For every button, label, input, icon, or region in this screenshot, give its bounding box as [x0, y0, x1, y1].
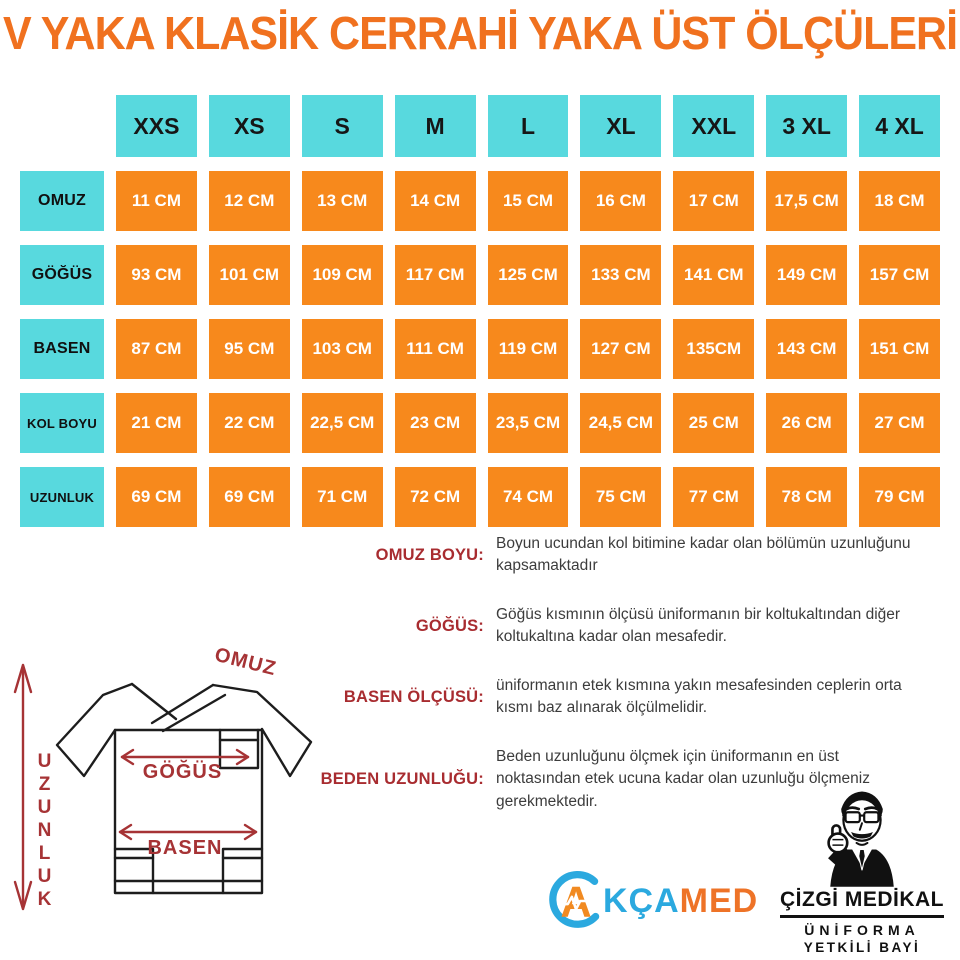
cizgi-medikal-logo: ÇİZGİ MEDİKAL ÜNİFORMA YETKİLİ BAYİ [766, 786, 958, 955]
size-cell-basen-3xl: 143 CM [766, 319, 847, 379]
size-cell-uzunluk-xl: 75 CM [580, 467, 661, 527]
size-cell-omuz-xxs: 11 CM [116, 171, 197, 231]
size-cell-kolboyu-4xl: 27 CM [859, 393, 940, 453]
scrub-top-measurement-diagram: OMUZ GÖĞÜS BASEN UZUNLUK [0, 645, 340, 960]
size-cell-gogus-xxl: 141 CM [673, 245, 754, 305]
size-cell-omuz-4xl: 18 CM [859, 171, 940, 231]
column-header-l: L [488, 95, 569, 157]
column-header-xxs: XXS [116, 95, 197, 157]
definition-text: Boyun ucundan kol bitimine kadar olan bö… [496, 533, 926, 578]
row-label-gogus: GÖĞÜS [20, 245, 104, 305]
akcamed-wordmark: KÇAMED [603, 882, 758, 921]
size-cell-uzunluk-xxs: 69 CM [116, 467, 197, 527]
size-cell-kolboyu-xxs: 21 CM [116, 393, 197, 453]
size-cell-gogus-4xl: 157 CM [859, 245, 940, 305]
size-cell-uzunluk-xxl: 77 CM [673, 467, 754, 527]
cizgi-medikal-yetkili-bayi: YETKİLİ BAYİ [766, 940, 958, 955]
akcamed-letter-a: A [560, 879, 591, 927]
akcamed-emblem-icon: A [545, 870, 607, 932]
size-cell-basen-s: 103 CM [302, 319, 383, 379]
size-cell-basen-l: 119 CM [488, 319, 569, 379]
size-cell-uzunluk-s: 71 CM [302, 467, 383, 527]
size-cell-basen-4xl: 151 CM [859, 319, 940, 379]
size-cell-omuz-xxl: 17 CM [673, 171, 754, 231]
column-header-xs: XS [209, 95, 290, 157]
size-cell-uzunluk-m: 72 CM [395, 467, 476, 527]
column-header-4xl: 4 XL [859, 95, 940, 157]
size-cell-uzunluk-xs: 69 CM [209, 467, 290, 527]
size-cell-omuz-l: 15 CM [488, 171, 569, 231]
size-cell-gogus-l: 125 CM [488, 245, 569, 305]
column-header-s: S [302, 95, 383, 157]
size-cell-gogus-xs: 101 CM [209, 245, 290, 305]
size-cell-kolboyu-xs: 22 CM [209, 393, 290, 453]
cizgi-medikal-name: ÇİZGİ MEDİKAL [780, 888, 944, 918]
row-label-basen: BASEN [20, 319, 104, 379]
size-cell-gogus-xxs: 93 CM [116, 245, 197, 305]
size-cell-omuz-3xl: 17,5 CM [766, 171, 847, 231]
akcamed-wordmark-kca: KÇA [603, 882, 680, 920]
row-label-kol-boyu: KOL BOYU [20, 393, 104, 453]
size-cell-kolboyu-m: 23 CM [395, 393, 476, 453]
definition-gogus: GÖĞÜS: Göğüs kısmının ölçüsü üniformanın… [302, 604, 950, 649]
size-cell-omuz-m: 14 CM [395, 171, 476, 231]
definition-text: Göğüs kısmının ölçüsü üniformanın bir ko… [496, 604, 926, 649]
size-cell-basen-xxs: 87 CM [116, 319, 197, 379]
size-cell-kolboyu-3xl: 26 CM [766, 393, 847, 453]
size-table: XXS XS S M L XL XXL 3 XL 4 XL OMUZ 11 CM… [20, 95, 940, 527]
table-corner-spacer [20, 95, 104, 157]
size-cell-omuz-xl: 16 CM [580, 171, 661, 231]
definition-term: GÖĞÜS: [302, 617, 484, 636]
size-cell-kolboyu-xxl: 25 CM [673, 393, 754, 453]
column-header-3xl: 3 XL [766, 95, 847, 157]
size-cell-kolboyu-l: 23,5 CM [488, 393, 569, 453]
definition-omuz-boyu: OMUZ BOYU: Boyun ucundan kol bitimine ka… [302, 533, 950, 578]
column-header-xxl: XXL [673, 95, 754, 157]
size-cell-gogus-3xl: 149 CM [766, 245, 847, 305]
page-title: V YAKA KLASİK CERRAHİ YAKA ÜST ÖLÇÜLERİ [0, 8, 960, 61]
size-cell-basen-m: 111 CM [395, 319, 476, 379]
diagram-label-basen: BASEN [120, 837, 250, 860]
diagram-label-uzunluk: UZUNLUK [33, 751, 55, 881]
definition-basen-olcusu: BASEN ÖLÇÜSÜ: üniformanın etek kısmına y… [302, 675, 950, 720]
size-cell-gogus-s: 109 CM [302, 245, 383, 305]
column-header-xl: XL [580, 95, 661, 157]
size-cell-basen-xl: 127 CM [580, 319, 661, 379]
size-cell-gogus-m: 117 CM [395, 245, 476, 305]
diagram-label-gogus: GÖĞÜS [120, 761, 245, 784]
row-label-omuz: OMUZ [20, 171, 104, 231]
size-cell-basen-xs: 95 CM [209, 319, 290, 379]
size-cell-basen-xxl: 135CM [673, 319, 754, 379]
definition-term: OMUZ BOYU: [302, 546, 484, 565]
size-cell-uzunluk-4xl: 79 CM [859, 467, 940, 527]
column-header-m: M [395, 95, 476, 157]
cizgi-medikal-uniforma: ÜNİFORMA [766, 922, 958, 938]
size-cell-kolboyu-s: 22,5 CM [302, 393, 383, 453]
size-cell-uzunluk-3xl: 78 CM [766, 467, 847, 527]
akcamed-wordmark-med: MED [680, 882, 759, 920]
size-cell-omuz-xs: 12 CM [209, 171, 290, 231]
row-label-uzunluk: UZUNLUK [20, 467, 104, 527]
size-cell-kolboyu-xl: 24,5 CM [580, 393, 661, 453]
definition-text: üniformanın etek kısmına yakın mesafesin… [496, 675, 926, 720]
thumbs-up-man-icon [801, 786, 923, 890]
akcamed-logo: A KÇAMED [545, 870, 758, 932]
size-cell-omuz-s: 13 CM [302, 171, 383, 231]
size-cell-gogus-xl: 133 CM [580, 245, 661, 305]
size-cell-uzunluk-l: 74 CM [488, 467, 569, 527]
